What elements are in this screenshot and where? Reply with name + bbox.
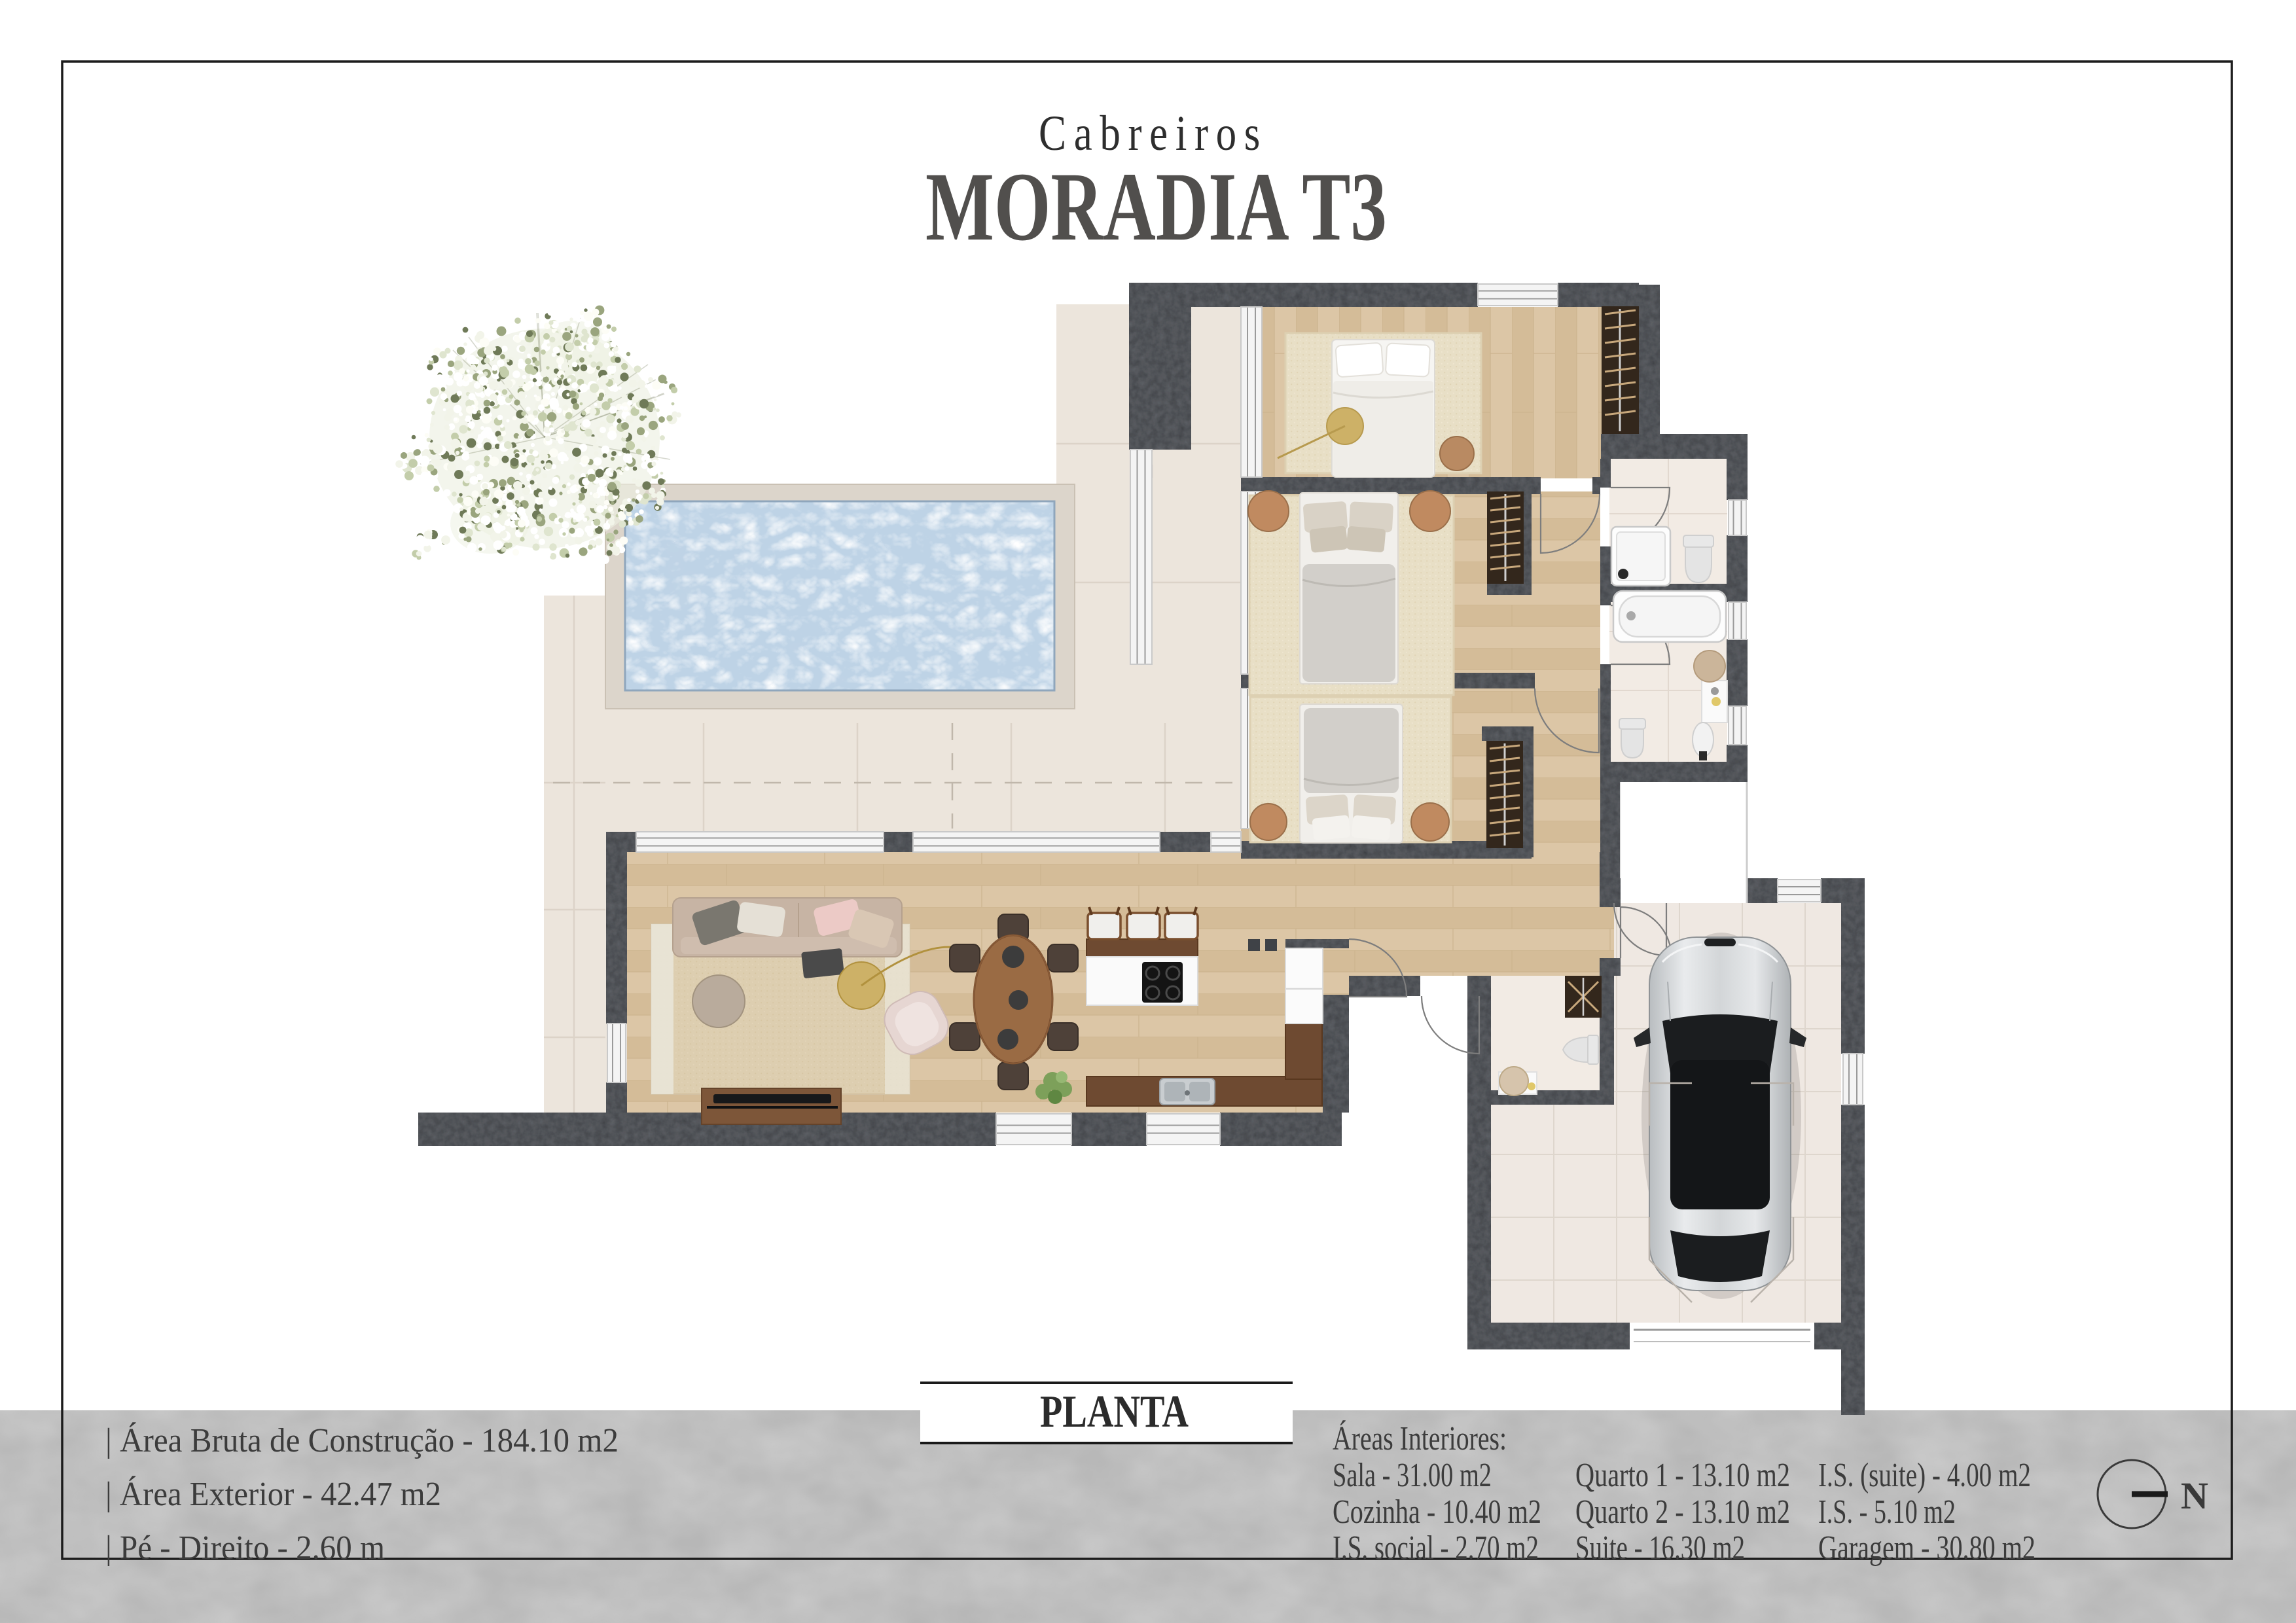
svg-text:I.S. - 5.10 m2: I.S. - 5.10 m2 [1818, 1493, 1956, 1531]
svg-text:PLANTA: PLANTA [1040, 1387, 1189, 1437]
svg-text:MORADIA T3: MORADIA T3 [925, 152, 1387, 261]
svg-text:| Pé - Direito - 2.60 m: | Pé - Direito - 2.60 m [105, 1529, 385, 1567]
svg-text:Quarto 2 - 13.10 m2: Quarto 2 - 13.10 m2 [1575, 1493, 1790, 1531]
svg-text:| Área Bruta de Construção - 1: | Área Bruta de Construção - 184.10 m2 [105, 1421, 619, 1459]
svg-text:Sala - 31.00 m2: Sala - 31.00 m2 [1333, 1457, 1492, 1494]
svg-text:N: N [2181, 1474, 2208, 1517]
svg-text:Áreas Interiores:: Áreas Interiores: [1333, 1419, 1507, 1457]
svg-text:I.S. social - 2.70 m2: I.S. social - 2.70 m2 [1333, 1529, 1539, 1567]
svg-text:I.S. (suite) - 4.00 m2: I.S. (suite) - 4.00 m2 [1818, 1457, 2031, 1494]
svg-text:| Área Exterior - 42.47 m2: | Área Exterior - 42.47 m2 [105, 1475, 441, 1513]
svg-text:Cozinha - 10.40 m2: Cozinha - 10.40 m2 [1333, 1493, 1541, 1531]
svg-text:Suite - 16.30 m2: Suite - 16.30 m2 [1575, 1529, 1745, 1567]
svg-text:Garagem - 30.80 m2: Garagem - 30.80 m2 [1818, 1529, 2036, 1567]
svg-text:Quarto 1 - 13.10 m2: Quarto 1 - 13.10 m2 [1575, 1457, 1790, 1494]
